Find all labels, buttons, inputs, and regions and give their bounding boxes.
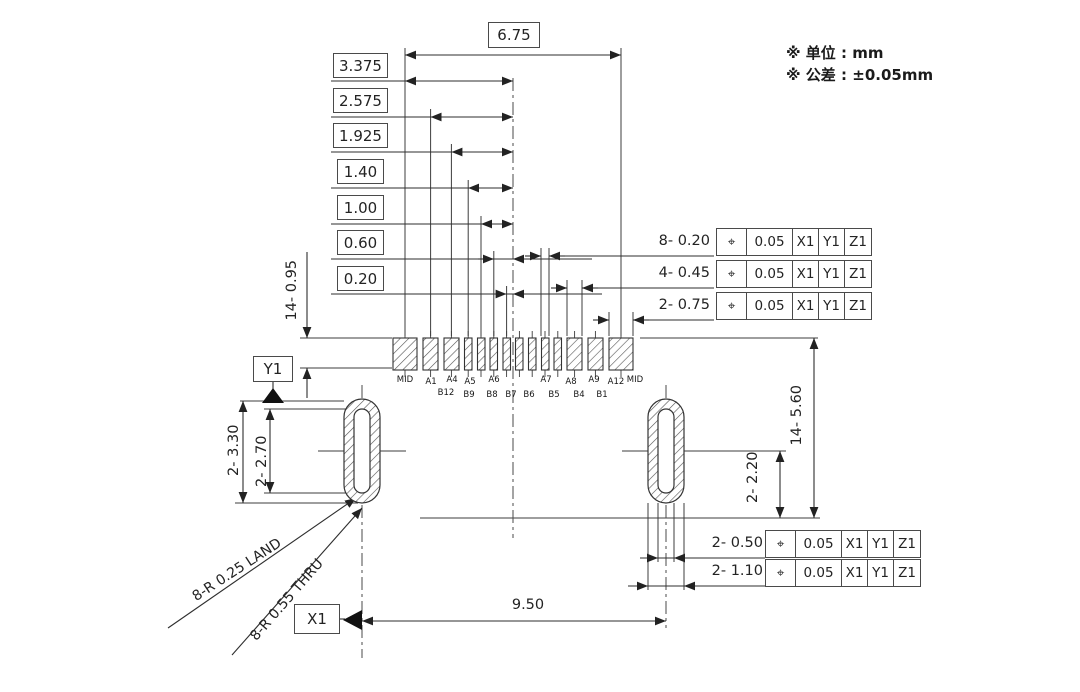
tolerance-frame-slots-2: ⌖ 0.05 X1 Y1 Z1: [765, 559, 921, 587]
datum-y1-triangle: [262, 388, 284, 403]
datum-ref: Z1: [894, 531, 920, 557]
pin-label: A12: [608, 377, 625, 387]
label-slot-width-110: 2- 1.10: [693, 564, 763, 579]
right-slot-hole: [658, 409, 674, 493]
pad-a5: [465, 338, 473, 370]
pin-label: B5: [548, 390, 559, 400]
dim-stack-7: 0.20: [337, 266, 384, 291]
pad-b7: [503, 338, 511, 370]
left-slot: [344, 399, 380, 503]
dim-stack-6: 0.60: [337, 230, 384, 255]
pad-a1-b12: [423, 338, 438, 370]
label-pad-width-8: 8- 0.20: [640, 234, 710, 249]
dim-stack-4: 1.40: [337, 159, 384, 184]
engineering-drawing: ※ 单位 : mm ※ 公差 : ±0.05mm 6.75 3.375 2.57…: [0, 0, 1080, 692]
label-pad-width-4: 4- 0.45: [640, 266, 710, 281]
note-tolerance: ※ 公差 : ±0.05mm: [786, 64, 933, 85]
pin-label: B8: [486, 390, 497, 400]
datum-ref: X1: [842, 531, 868, 557]
tolerance-value: 0.05: [747, 261, 793, 287]
pad-a6: [490, 338, 498, 370]
position-symbol: ⌖: [717, 261, 747, 287]
dim-slot-outer-length: 2- 3.30: [227, 410, 242, 490]
pin-label: B4: [573, 390, 584, 400]
datum-ref: Y1: [819, 293, 845, 319]
datum-ref: X1: [793, 293, 819, 319]
right-slot: [648, 399, 684, 503]
pin-label: MID: [397, 375, 413, 385]
dim-slot-inner-length: 2- 2.70: [255, 421, 270, 501]
dim-slot-pitch: 9.50: [498, 598, 558, 613]
tolerance-value: 0.05: [747, 229, 793, 255]
dim-stack-3: 1.925: [333, 123, 388, 148]
datum-ref: Y1: [868, 531, 894, 557]
pin-label: B1: [596, 390, 607, 400]
pin-label: MID: [627, 375, 643, 385]
pad-a4-b9: [444, 338, 459, 370]
pin-label: A8: [565, 377, 576, 387]
pin-label: B9: [463, 390, 474, 400]
datum-y1-box: Y1: [253, 356, 293, 382]
pin-label: A6: [488, 375, 499, 385]
datum-ref: Y1: [868, 560, 894, 586]
pad-a12-b1: [588, 338, 603, 370]
pad-a8: [554, 338, 562, 370]
datum-ref: X1: [842, 560, 868, 586]
dim-right-span: 14- 5.60: [790, 370, 805, 460]
pin-label: A1: [425, 377, 436, 387]
label-pad-width-2: 2- 0.75: [640, 298, 710, 313]
position-symbol: ⌖: [717, 229, 747, 255]
pad-a7: [529, 338, 537, 370]
pin-label: B12: [438, 388, 455, 398]
datum-ref: X1: [793, 261, 819, 287]
datum-ref: X1: [793, 229, 819, 255]
pad-mid-right: [609, 338, 633, 370]
tolerance-frame-pads-2: ⌖ 0.05 X1 Y1 Z1: [716, 260, 872, 288]
tolerance-frame-slots-1: ⌖ 0.05 X1 Y1 Z1: [765, 530, 921, 558]
pin-label: B7: [505, 390, 516, 400]
datum-ref: Z1: [845, 229, 871, 255]
left-slot-hole: [354, 409, 370, 493]
pin-label: A5: [464, 377, 475, 387]
dim-top-width: 6.75: [488, 22, 540, 48]
datum-ref: Z1: [845, 293, 871, 319]
pad-b8: [478, 338, 486, 370]
drawing-canvas: [0, 0, 1080, 692]
tolerance-frame-pads-3: ⌖ 0.05 X1 Y1 Z1: [716, 292, 872, 320]
position-symbol: ⌖: [717, 293, 747, 319]
pin-label: A9: [588, 375, 599, 385]
dim-stack-1: 3.375: [333, 53, 388, 78]
datum-ref: Y1: [819, 229, 845, 255]
datum-ref: Z1: [894, 560, 920, 586]
tolerance-value: 0.05: [796, 531, 842, 557]
pad-a9-b4: [567, 338, 582, 370]
datum-x1-box: X1: [294, 604, 340, 634]
pin-label: A7: [540, 375, 551, 385]
tolerance-frame-pads-1: ⌖ 0.05 X1 Y1 Z1: [716, 228, 872, 256]
tolerance-value: 0.05: [796, 560, 842, 586]
tolerance-value: 0.05: [747, 293, 793, 319]
datum-x1-triangle: [343, 610, 362, 630]
note-unit: ※ 单位 : mm: [786, 42, 884, 63]
pad-b5: [542, 338, 550, 370]
dim-slot-center-offset: 2- 2.20: [746, 437, 761, 517]
pad-b6: [516, 338, 524, 370]
label-slot-width-050: 2- 0.50: [693, 536, 763, 551]
pin-label: B6: [523, 390, 534, 400]
dim-stack-5: 1.00: [337, 195, 384, 220]
dim-stack-2: 2.575: [333, 88, 388, 113]
position-symbol: ⌖: [766, 560, 796, 586]
datum-ref: Z1: [845, 261, 871, 287]
dim-pad-length: 14- 0.95: [285, 245, 300, 335]
position-symbol: ⌖: [766, 531, 796, 557]
datum-ref: Y1: [819, 261, 845, 287]
pin-label: A4: [446, 375, 457, 385]
pad-mid-left: [393, 338, 417, 370]
